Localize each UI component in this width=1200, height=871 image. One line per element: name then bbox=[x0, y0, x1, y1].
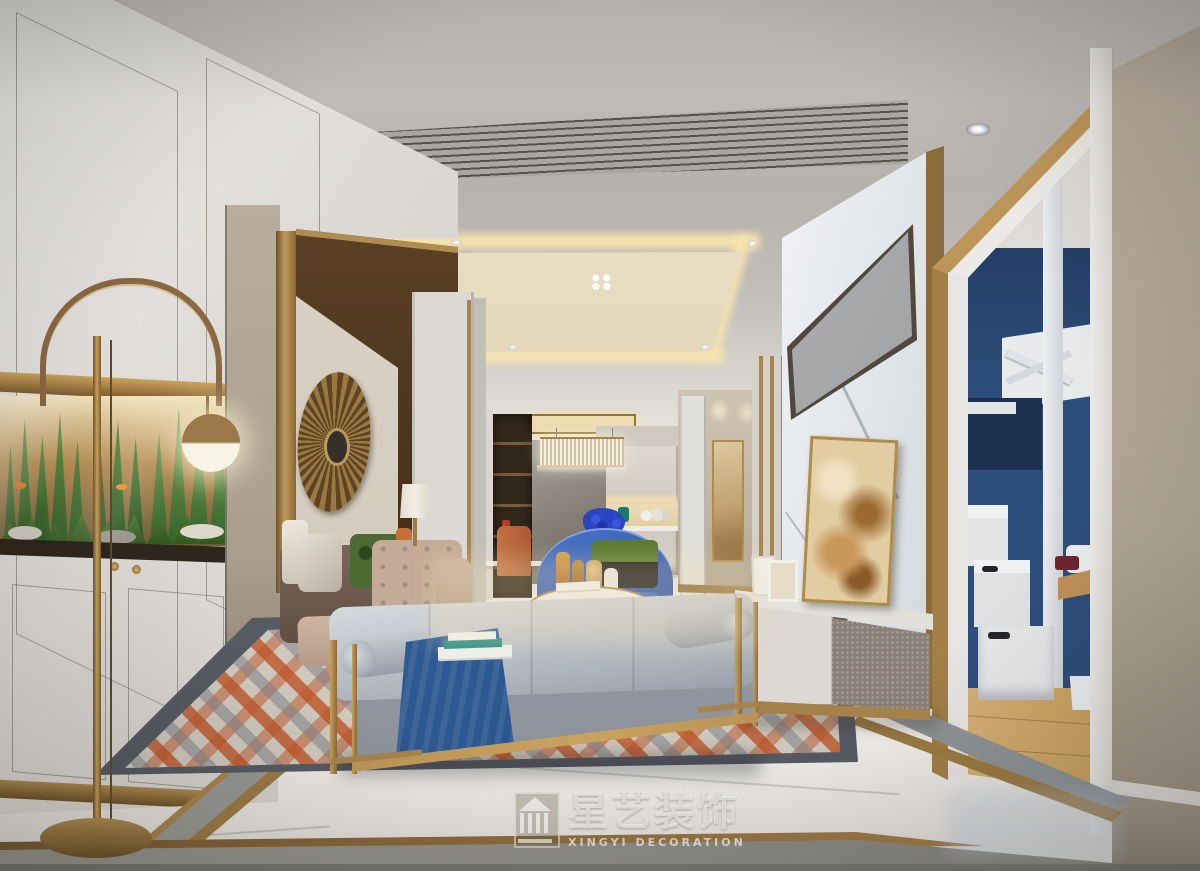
drawer-handle-slot bbox=[988, 632, 1010, 639]
logo-plinth bbox=[518, 839, 552, 843]
watermark-brand-en: XINGYI DECORATION bbox=[568, 837, 746, 848]
cabinet-knob-icon bbox=[132, 565, 141, 574]
watermark: 星艺装饰 XINGYI DECORATION bbox=[514, 792, 746, 848]
chandelier-fringe bbox=[537, 465, 627, 473]
tray-downlight-icon bbox=[700, 344, 710, 350]
floor-door-reflection bbox=[948, 790, 1120, 858]
hallway-artwork bbox=[712, 440, 744, 562]
sunburst-center bbox=[324, 428, 350, 466]
photo-frame bbox=[768, 560, 798, 602]
door-casing bbox=[1090, 48, 1114, 834]
bench-gold-leg bbox=[352, 644, 357, 774]
quad-spotlight-icon bbox=[588, 272, 614, 292]
crystal-chandelier bbox=[540, 437, 624, 467]
floor-lamp-globe bbox=[182, 414, 240, 472]
interior-render: 星艺装饰 XINGYI DECORATION bbox=[0, 0, 1200, 871]
watermark-brand-cn: 星艺装饰 bbox=[568, 792, 746, 832]
sofa-pillow-silver bbox=[298, 534, 342, 592]
tray-downlight-icon bbox=[508, 344, 518, 350]
table-lamp-stem bbox=[413, 518, 417, 546]
leaning-artwork bbox=[802, 436, 899, 606]
logo-columns bbox=[520, 813, 550, 833]
cove-light-bottom bbox=[480, 350, 724, 363]
counter-jars bbox=[640, 506, 670, 522]
floor-band-bottom-edge bbox=[0, 864, 1200, 871]
floor-lamp-cable bbox=[110, 340, 112, 834]
lower-cabinet-outline bbox=[12, 584, 106, 780]
table-lamp-shade bbox=[400, 484, 430, 518]
bunk-stair-step bbox=[974, 573, 1030, 627]
pavilion-building-icon bbox=[514, 792, 560, 848]
bolster-end-cap bbox=[340, 640, 376, 676]
bench-gold-leg bbox=[330, 640, 337, 774]
floor-lamp-pole bbox=[93, 336, 101, 838]
tray-downlight-icon bbox=[451, 239, 462, 246]
bed-throw-maroon bbox=[1055, 556, 1079, 570]
downlight-icon bbox=[966, 123, 990, 136]
right-floor-reflection bbox=[1112, 794, 1200, 871]
floor-warm-reflection bbox=[430, 556, 760, 646]
wall-wash-light bbox=[708, 398, 730, 424]
bunk-lower-rail bbox=[968, 402, 1016, 414]
logo-roof bbox=[519, 797, 551, 811]
drawer-handle-slot bbox=[982, 566, 998, 572]
tray-downlight-icon bbox=[747, 240, 758, 247]
floor-lamp-base bbox=[40, 818, 152, 858]
